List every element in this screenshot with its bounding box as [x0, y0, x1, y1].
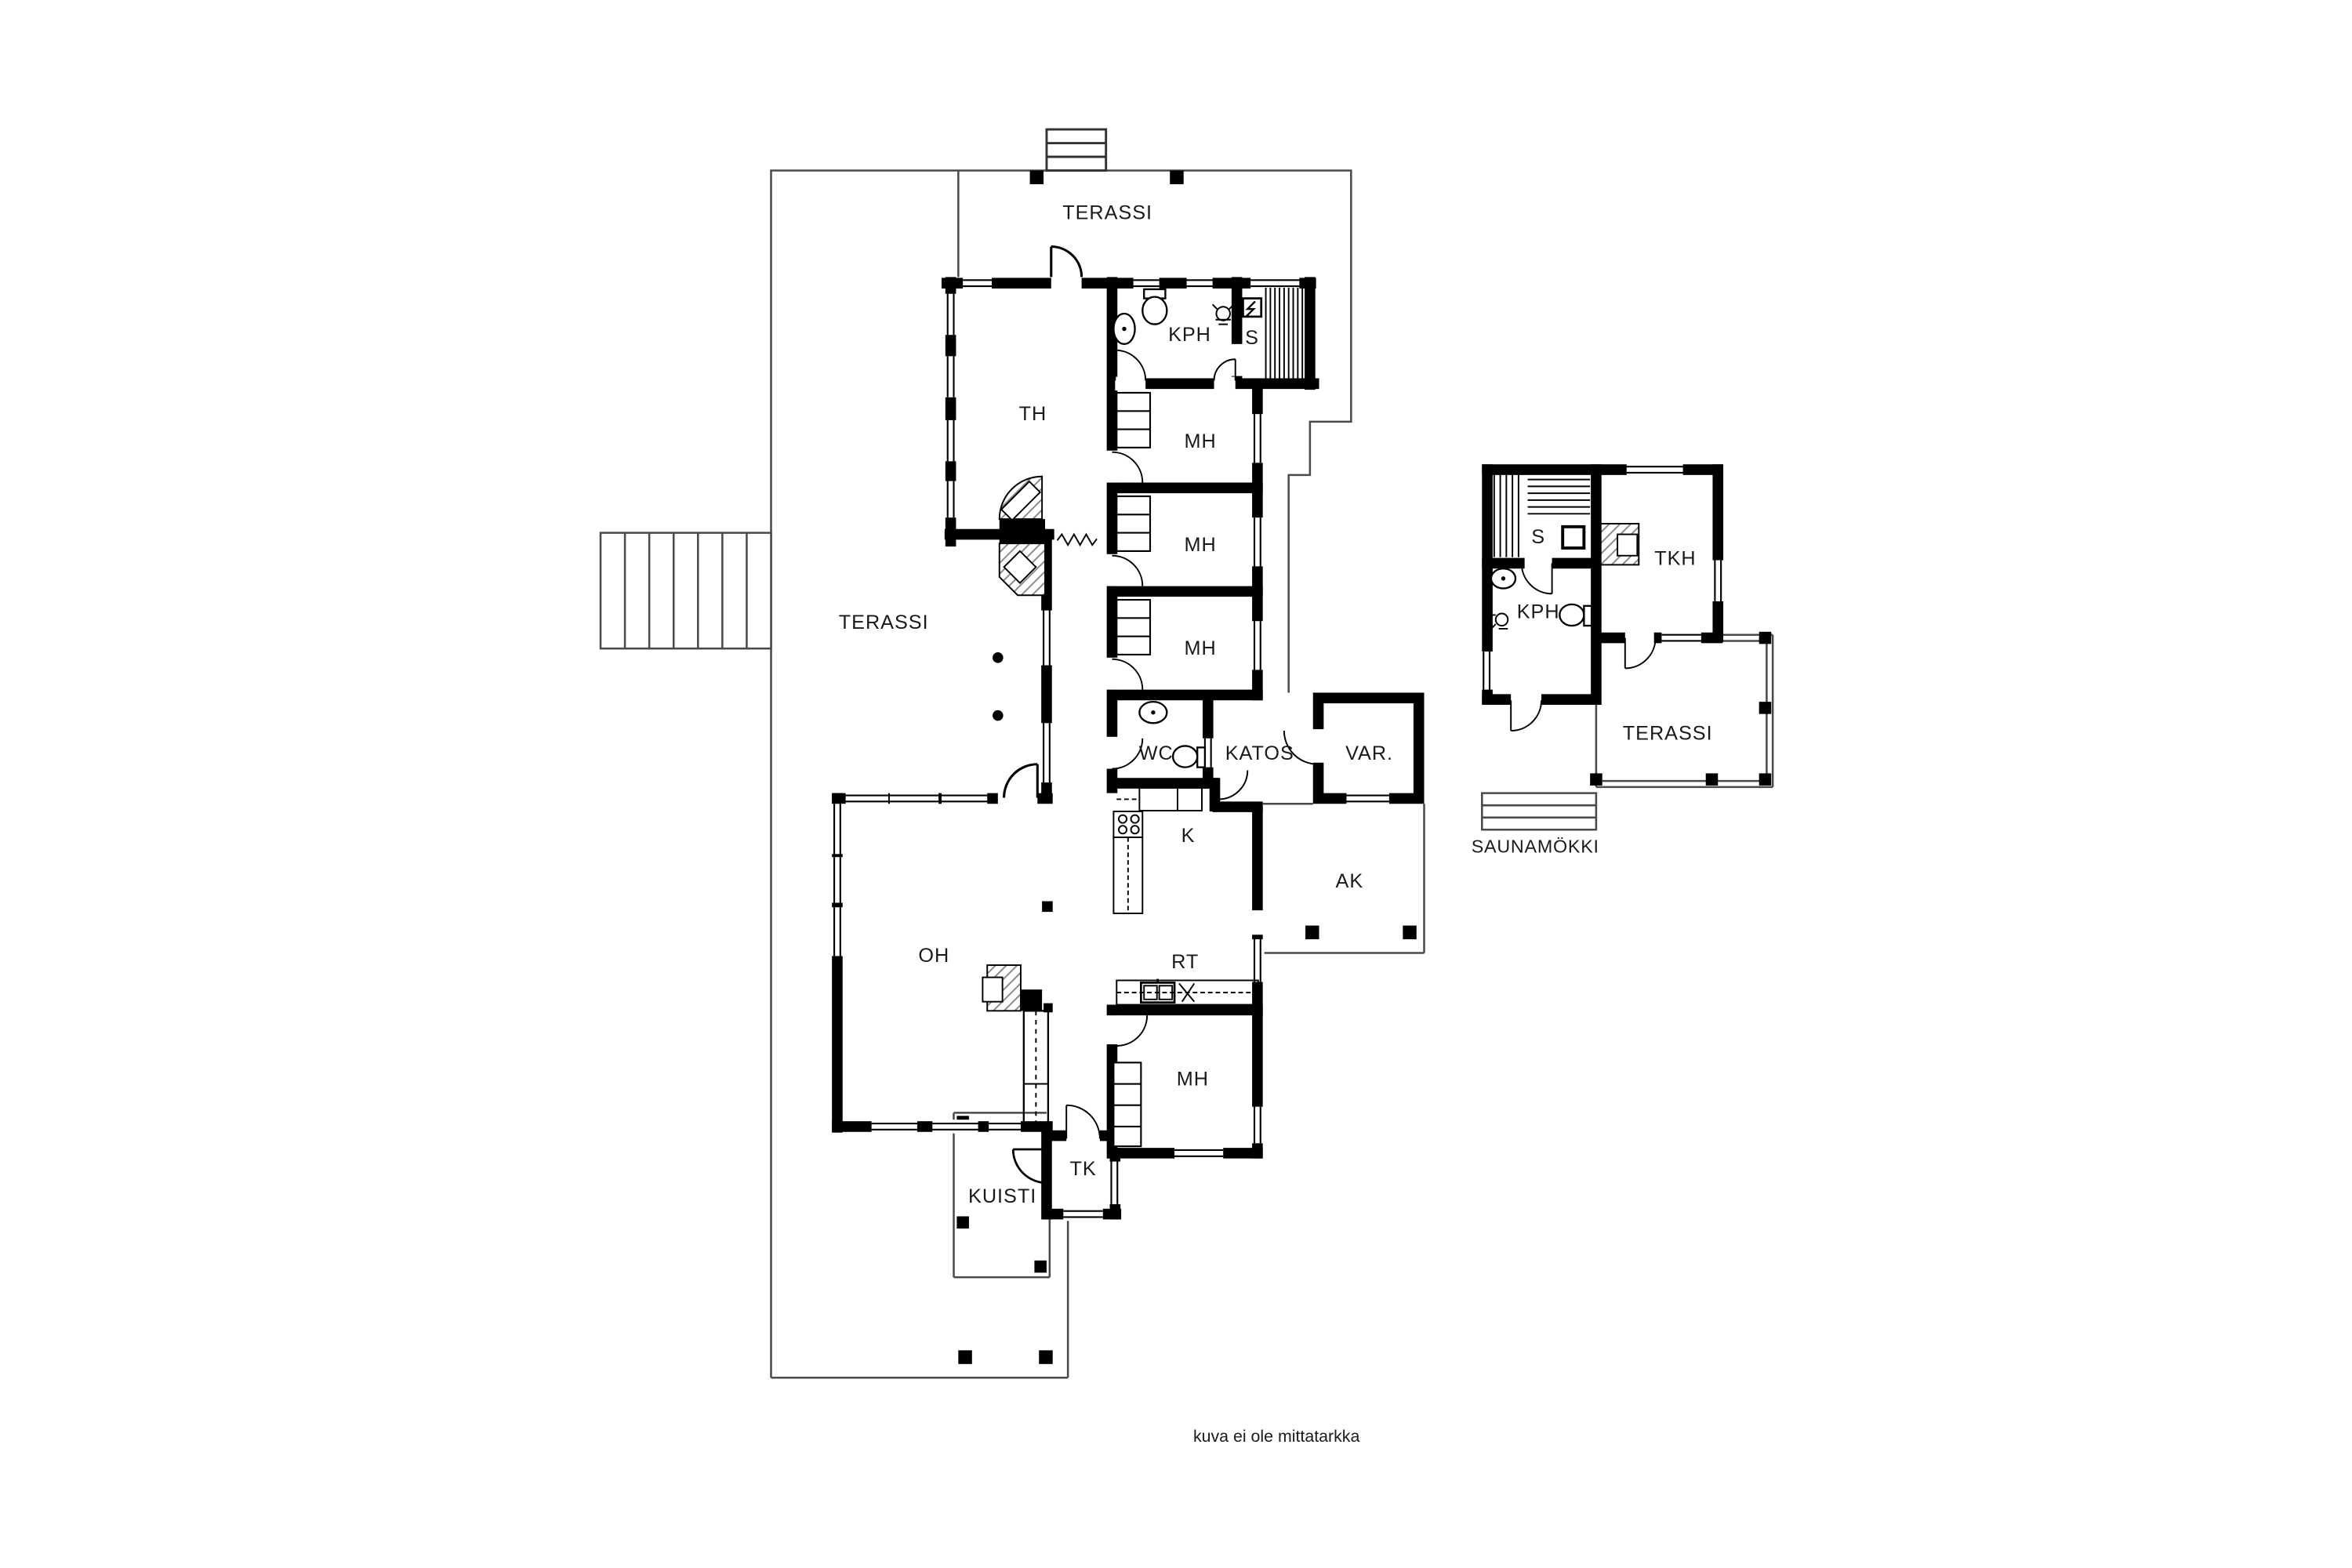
toilet-bowl [1142, 297, 1167, 325]
chimney-icon [1047, 129, 1106, 170]
toilet-bowl [1173, 746, 1197, 767]
label-terassi-top: TERASSI [1062, 202, 1152, 224]
label-terassi-left: TERASSI [839, 612, 929, 633]
stairs-west [601, 533, 771, 649]
post [1030, 170, 1044, 183]
label-s: S [1245, 327, 1259, 349]
toilet-tank [1584, 606, 1592, 626]
label-wc: WC [1139, 742, 1174, 764]
label-k: K [1181, 825, 1196, 847]
label-ak: AK [1336, 870, 1364, 892]
round-post [993, 652, 1004, 663]
label-mh2: MH [1184, 534, 1216, 556]
post [956, 1216, 969, 1229]
label-kuisti: KUISTI [968, 1185, 1036, 1207]
label-disclaimer-note: kuva ei ole mittatarkka [1193, 1427, 1359, 1446]
toilet-bowl [1559, 604, 1584, 626]
floor-plan-page: TERASSI TERASSI TH KPH S MH MH MH WC KAT… [0, 0, 2352, 1568]
post [1590, 773, 1602, 786]
label-cottage-tkh: TKH [1654, 547, 1696, 569]
label-cottage-s: S [1531, 526, 1545, 548]
post [1034, 1261, 1047, 1273]
post [958, 1350, 971, 1363]
round-post [993, 710, 1004, 721]
post [1042, 902, 1053, 913]
toilet-tank [1197, 747, 1205, 767]
label-var: VAR. [1345, 742, 1393, 764]
label-mh4: MH [1177, 1068, 1209, 1090]
post [1759, 632, 1772, 644]
label-th: TH [1019, 403, 1047, 425]
label-mh3: MH [1184, 637, 1216, 659]
cottage-sauna-stove [1563, 527, 1584, 548]
post [1305, 926, 1319, 939]
label-saunamokki: SAUNAMÖKKI [1472, 836, 1599, 856]
label-mh1: MH [1184, 430, 1216, 452]
floor-plan-canvas: TERASSI TERASSI TH KPH S MH MH MH WC KAT… [0, 0, 2352, 1568]
label-cottage-terassi: TERASSI [1623, 723, 1713, 745]
post [1759, 702, 1772, 714]
label-kph: KPH [1168, 324, 1211, 346]
post [1759, 773, 1772, 786]
label-tk: TK [1069, 1158, 1096, 1180]
tkh-fireplace [1601, 524, 1639, 564]
label-cottage-kph: KPH [1517, 601, 1560, 622]
label-katos: KATOS [1225, 742, 1294, 764]
post [1706, 773, 1719, 786]
post [1039, 1350, 1052, 1363]
label-rt: RT [1171, 951, 1199, 973]
post [1403, 926, 1416, 939]
label-oh: OH [918, 945, 949, 967]
post [1170, 170, 1183, 183]
